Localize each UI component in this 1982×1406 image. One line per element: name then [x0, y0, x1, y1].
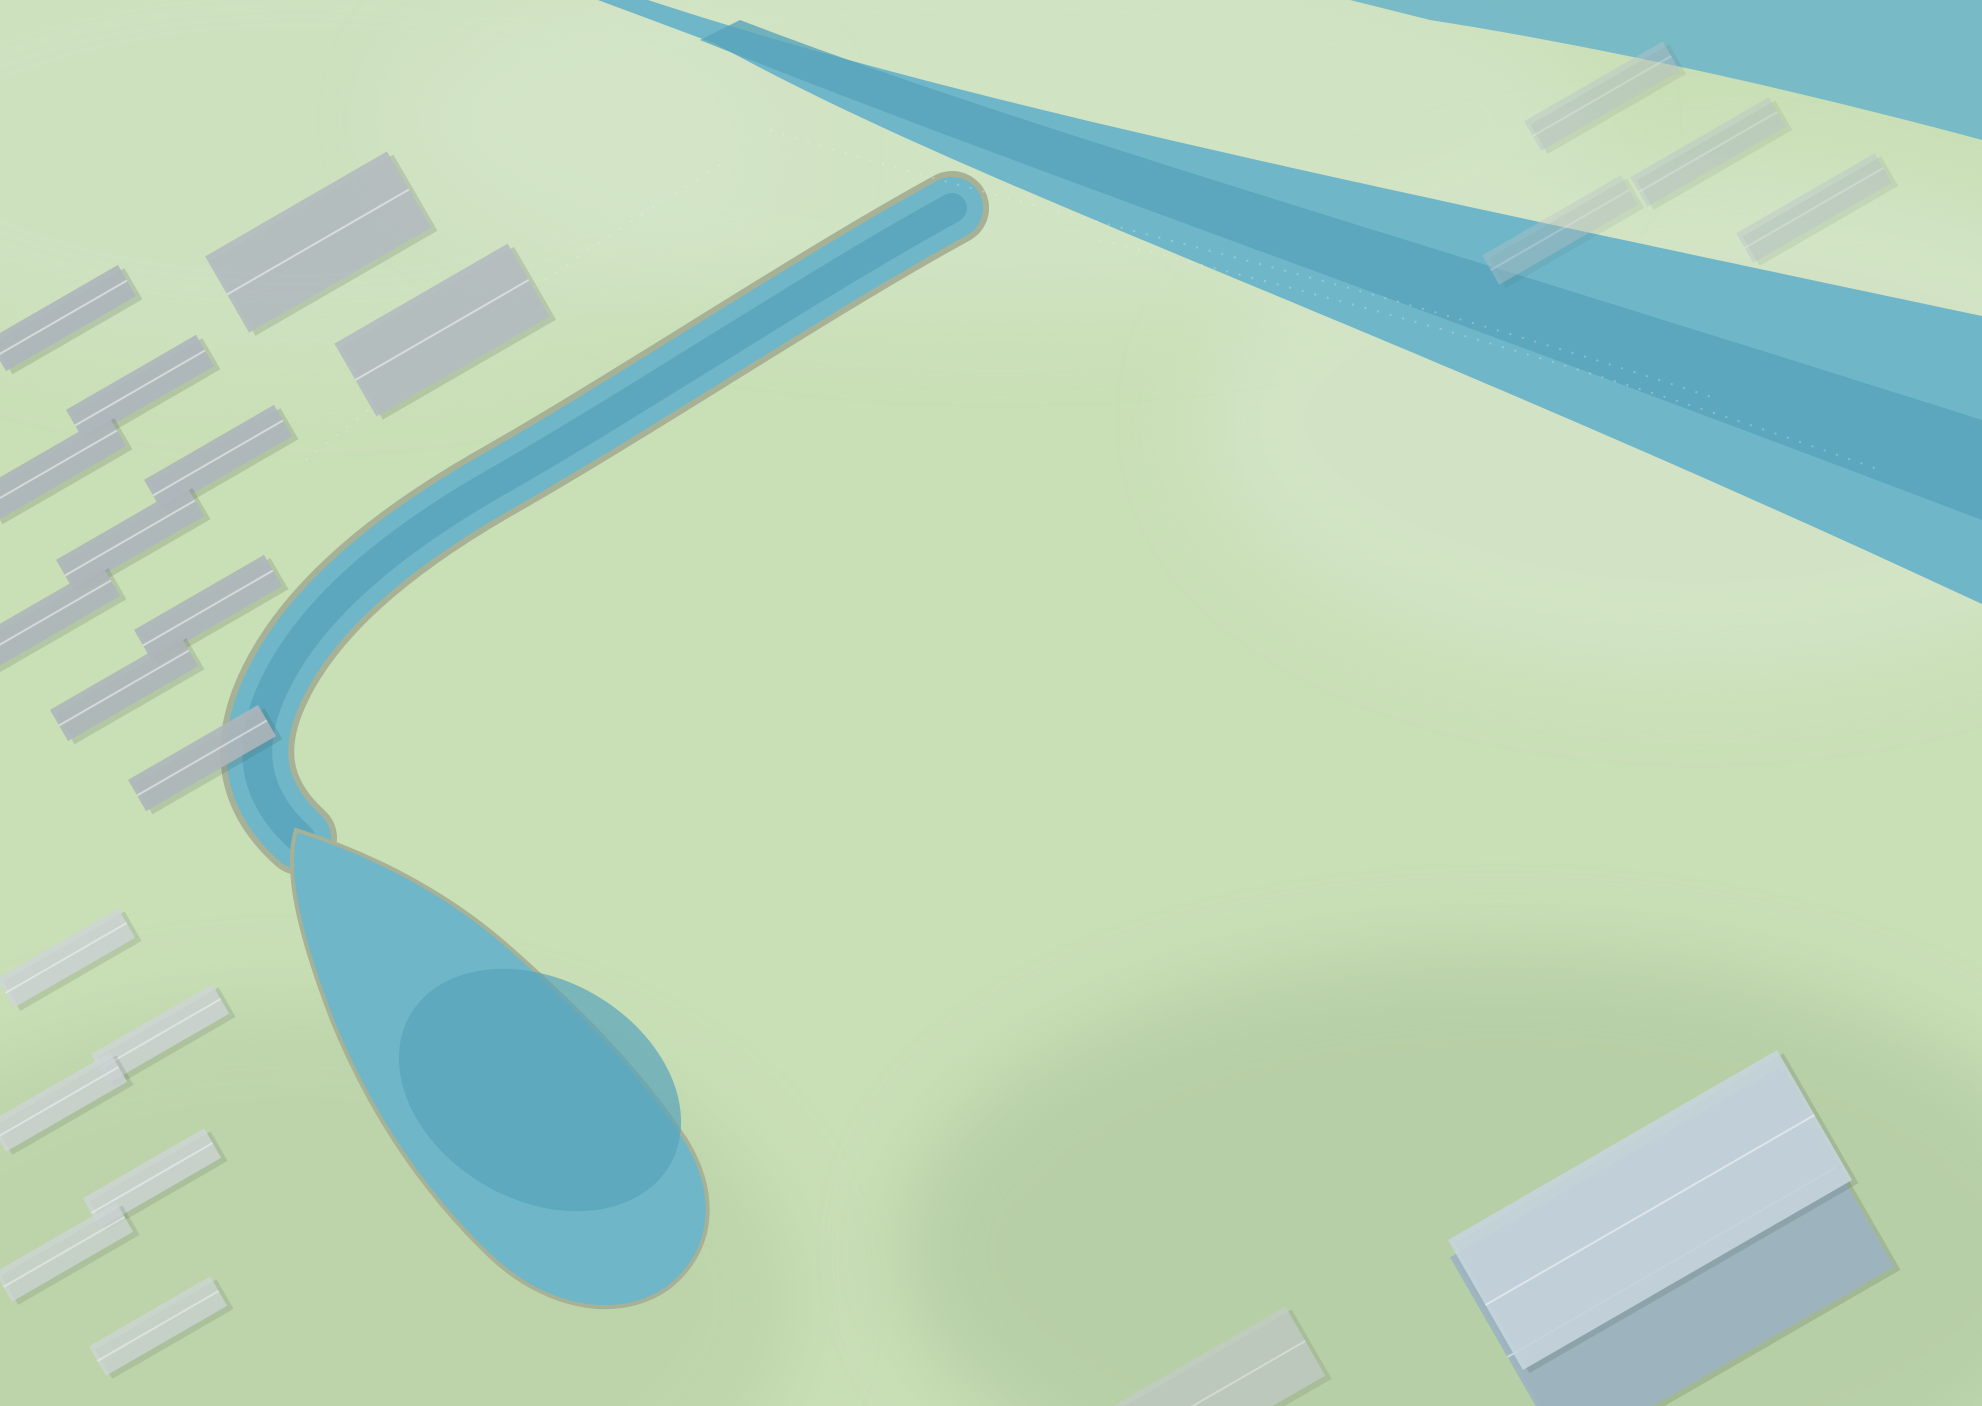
stage — [0, 0, 1982, 1406]
aerial-site-rendering — [0, 0, 1982, 1406]
